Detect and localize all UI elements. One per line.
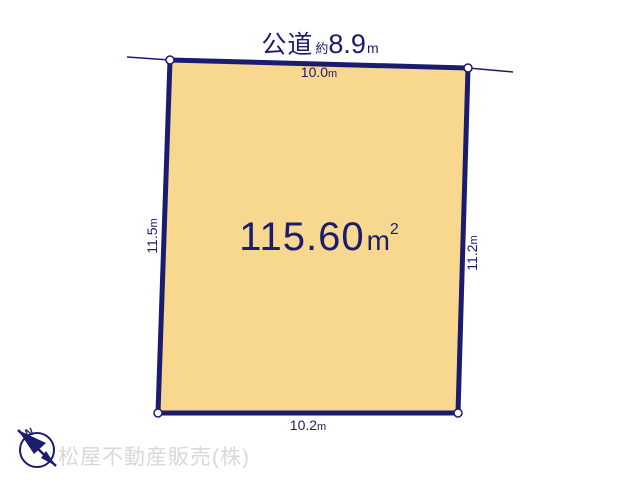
dimension-bottom-unit: m [317,421,326,433]
compass-icon: N [18,426,56,467]
dimension-bottom-value: 10.2 [290,417,317,433]
area-label: 115.60 m 2 [170,215,468,260]
road-name: 公道 [261,25,313,61]
dimension-top: 10.0m [170,64,468,80]
road-edge-line-right [468,68,513,72]
corner-marker-bottom-left [154,409,162,417]
road-width-unit: m [367,40,379,56]
dimension-left-unit: m [148,218,160,227]
dimension-right-unit: m [468,235,480,244]
dimension-bottom: 10.2m [158,417,458,433]
road-approx-prefix: 約 [315,38,328,57]
area-unit: m [367,225,390,257]
road-label: 公道 約 8.9 m [0,25,640,61]
dimension-left: 11.5m [144,201,160,271]
company-watermark: 松屋不動産販売(株) [58,441,250,471]
dimension-left-value: 11.5 [144,227,160,253]
dimension-top-value: 10.0 [301,64,328,80]
road-width-value: 8.9 [328,29,366,60]
area-unit-superscript: 2 [390,221,399,239]
dimension-top-unit: m [328,68,337,80]
corner-marker-bottom-right [454,409,462,417]
land-plot-diagram: N 公道 約 8.9 m 10.0m 11.5m 11.2m 10.2m 115… [0,0,640,480]
area-value: 115.60 [239,215,364,260]
